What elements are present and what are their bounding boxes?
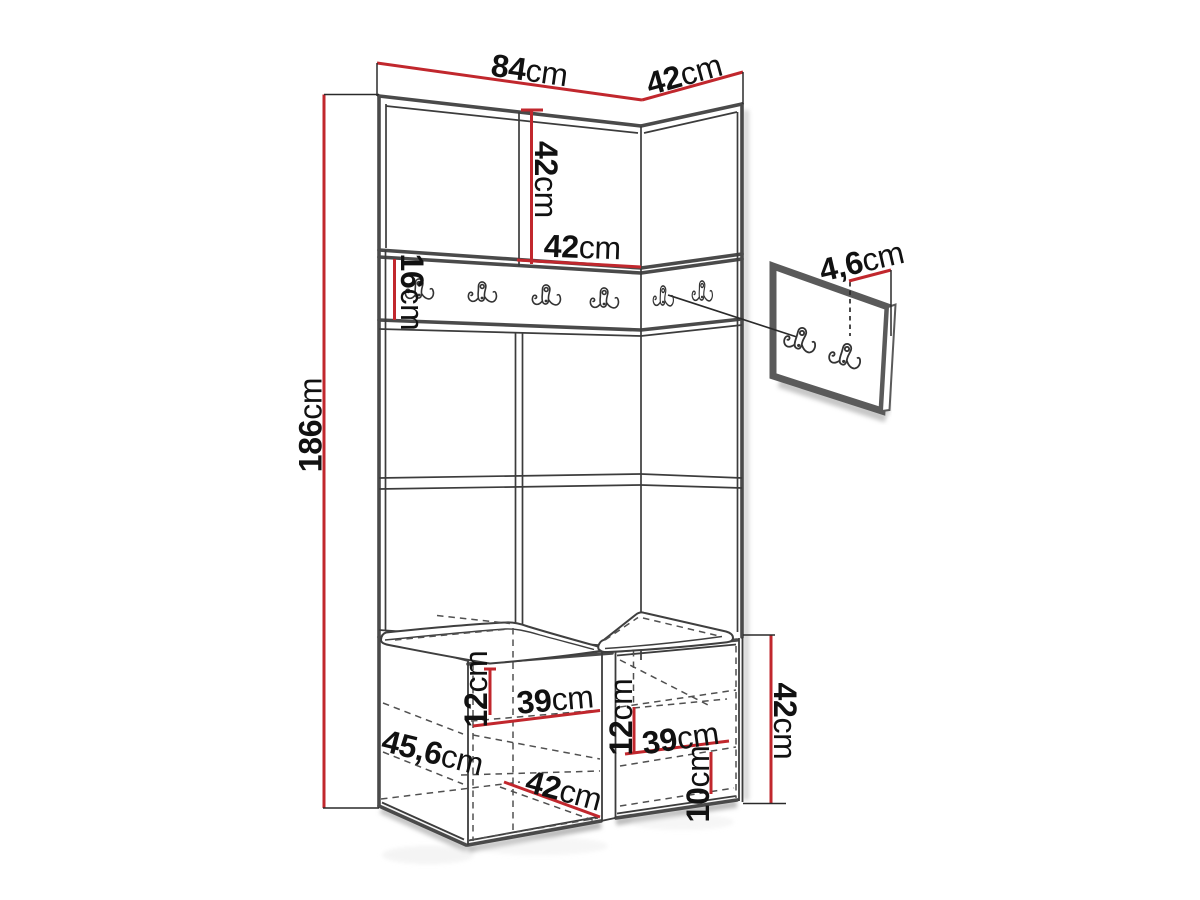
svg-text:42cm: 42cm <box>767 682 803 759</box>
svg-text:84cm: 84cm <box>489 47 570 93</box>
svg-text:10cm: 10cm <box>680 745 716 822</box>
svg-text:42cm: 42cm <box>528 141 564 218</box>
svg-text:39cm: 39cm <box>515 678 595 721</box>
svg-text:45,6cm: 45,6cm <box>378 722 487 782</box>
svg-text:186cm: 186cm <box>293 378 329 473</box>
svg-text:12cm: 12cm <box>458 650 494 727</box>
svg-text:16cm: 16cm <box>394 253 430 330</box>
svg-text:12cm: 12cm <box>603 678 639 755</box>
svg-text:42cm: 42cm <box>642 47 726 102</box>
svg-text:4,6cm: 4,6cm <box>816 234 908 288</box>
svg-text:42cm: 42cm <box>543 228 621 267</box>
